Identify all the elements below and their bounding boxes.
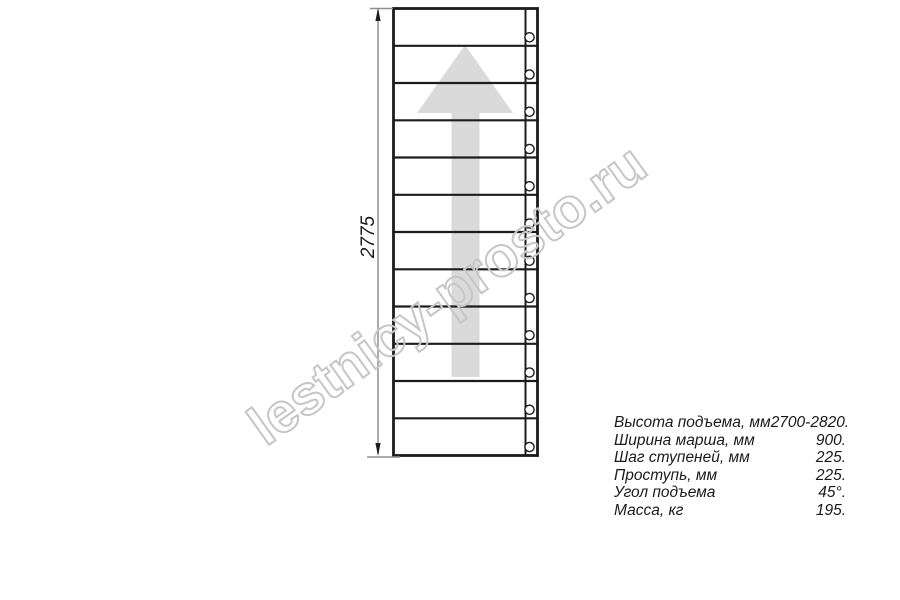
spec-row-height: Высота подъема, мм 2700-2820. — [614, 414, 846, 432]
spec-value: 225. — [816, 467, 846, 485]
baluster-circle — [525, 405, 534, 414]
baluster-circle — [525, 182, 534, 191]
spec-row-width: Ширина марша, мм 900. — [614, 432, 846, 450]
dimension-arrowhead-down-icon — [375, 443, 380, 456]
spec-value: 225. — [816, 449, 846, 467]
spec-row-step: Шаг ступеней, мм 225. — [614, 449, 846, 467]
spec-value: 195. — [816, 502, 846, 520]
dimension-label: 2775 — [358, 215, 379, 259]
baluster-circle — [525, 144, 534, 153]
drawing-canvas: 2775 lestnicy-prosto.ru Высота подъема, … — [0, 0, 900, 600]
baluster-circle — [525, 442, 534, 451]
baluster-circle — [525, 331, 534, 340]
baluster-circle — [525, 107, 534, 116]
spec-row-tread: Проступь, мм 225. — [614, 467, 846, 485]
spec-label: Ширина марша, мм — [614, 432, 755, 450]
spec-row-mass: Масса, кг 195. — [614, 502, 846, 520]
spec-row-angle: Угол подъема 45°. — [614, 484, 846, 502]
spec-label: Высота подъема, мм — [614, 414, 771, 432]
specs-table: Высота подъема, мм 2700-2820. Ширина мар… — [614, 414, 846, 520]
dimension-arrowhead-up-icon — [375, 8, 380, 21]
baluster-circle — [525, 368, 534, 377]
spec-value: 45°. — [818, 484, 846, 502]
spec-label: Шаг ступеней, мм — [614, 449, 750, 467]
baluster-circle — [525, 70, 534, 79]
spec-value: 900. — [816, 432, 846, 450]
baluster-circle — [525, 293, 534, 302]
spec-label: Угол подъема — [614, 484, 715, 502]
spec-value: 2700-2820. — [771, 414, 849, 432]
spec-label: Проступь, мм — [614, 467, 717, 485]
baluster-circle — [525, 33, 534, 42]
spec-label: Масса, кг — [614, 502, 683, 520]
